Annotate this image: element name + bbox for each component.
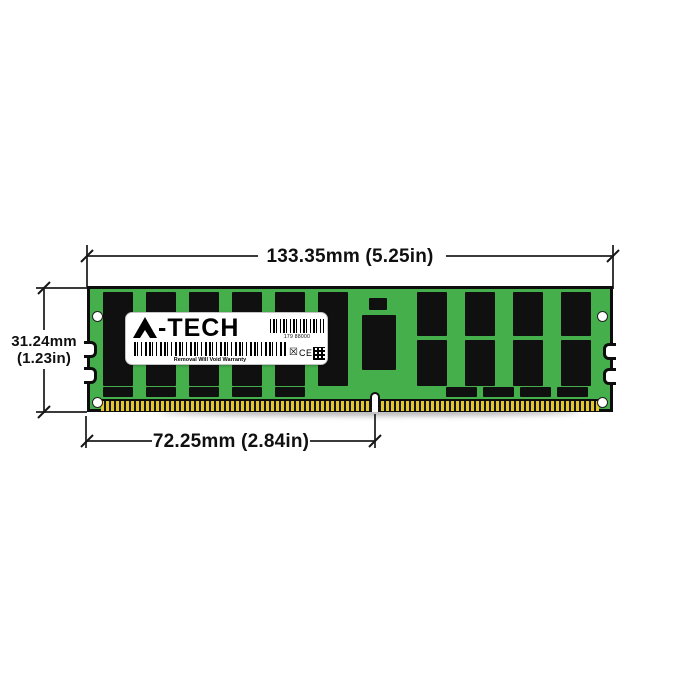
memory-chip (417, 292, 447, 336)
certification-symbols: ☒ CE (289, 344, 325, 362)
ce-mark: CE (299, 348, 313, 358)
retention-notch-left-upper (84, 341, 97, 358)
weee-bin-icon: ☒ (289, 348, 298, 358)
retention-notch-left-lower (84, 367, 97, 384)
product-label: -TECH 179 88000 Removal Will Void Warran… (125, 312, 328, 365)
memory-chip (146, 387, 176, 397)
serial-number: 179 88000 (270, 334, 324, 340)
memory-chip (465, 292, 495, 336)
qr-code-icon (313, 347, 325, 360)
key-notch (370, 392, 380, 412)
memory-chip (520, 387, 551, 397)
gold-pins-strip (101, 399, 599, 411)
memory-chip (465, 340, 495, 386)
memory-chips-layer (0, 0, 700, 700)
memory-chip (513, 340, 543, 386)
memory-chip (189, 387, 219, 397)
mounting-hole (92, 311, 103, 322)
diagram-canvas: 133.35mm (5.25in) 31.24mm (1.23in) 72.25… (0, 0, 700, 700)
memory-chip (417, 340, 447, 386)
memory-chip (369, 298, 387, 310)
memory-chip (561, 340, 591, 386)
retention-notch-right-lower (603, 368, 616, 385)
a-tech-logo-triangle-icon (133, 317, 157, 338)
memory-chip (362, 315, 396, 370)
a-tech-logo: -TECH (133, 316, 239, 339)
memory-chip (446, 387, 477, 397)
memory-chip (557, 387, 588, 397)
mounting-hole (597, 397, 608, 408)
barcode-small-icon (270, 319, 324, 333)
memory-chip (561, 292, 591, 336)
barcode-large-icon (134, 342, 286, 356)
memory-chip (275, 387, 305, 397)
mounting-hole (597, 311, 608, 322)
memory-chip (513, 292, 543, 336)
retention-notch-right-upper (603, 343, 616, 360)
mounting-hole (92, 397, 103, 408)
memory-chip (103, 387, 133, 397)
a-tech-logo-text: -TECH (158, 318, 239, 339)
warranty-text: Removal Will Void Warranty (134, 357, 286, 363)
memory-chip (483, 387, 514, 397)
memory-chip (232, 387, 262, 397)
